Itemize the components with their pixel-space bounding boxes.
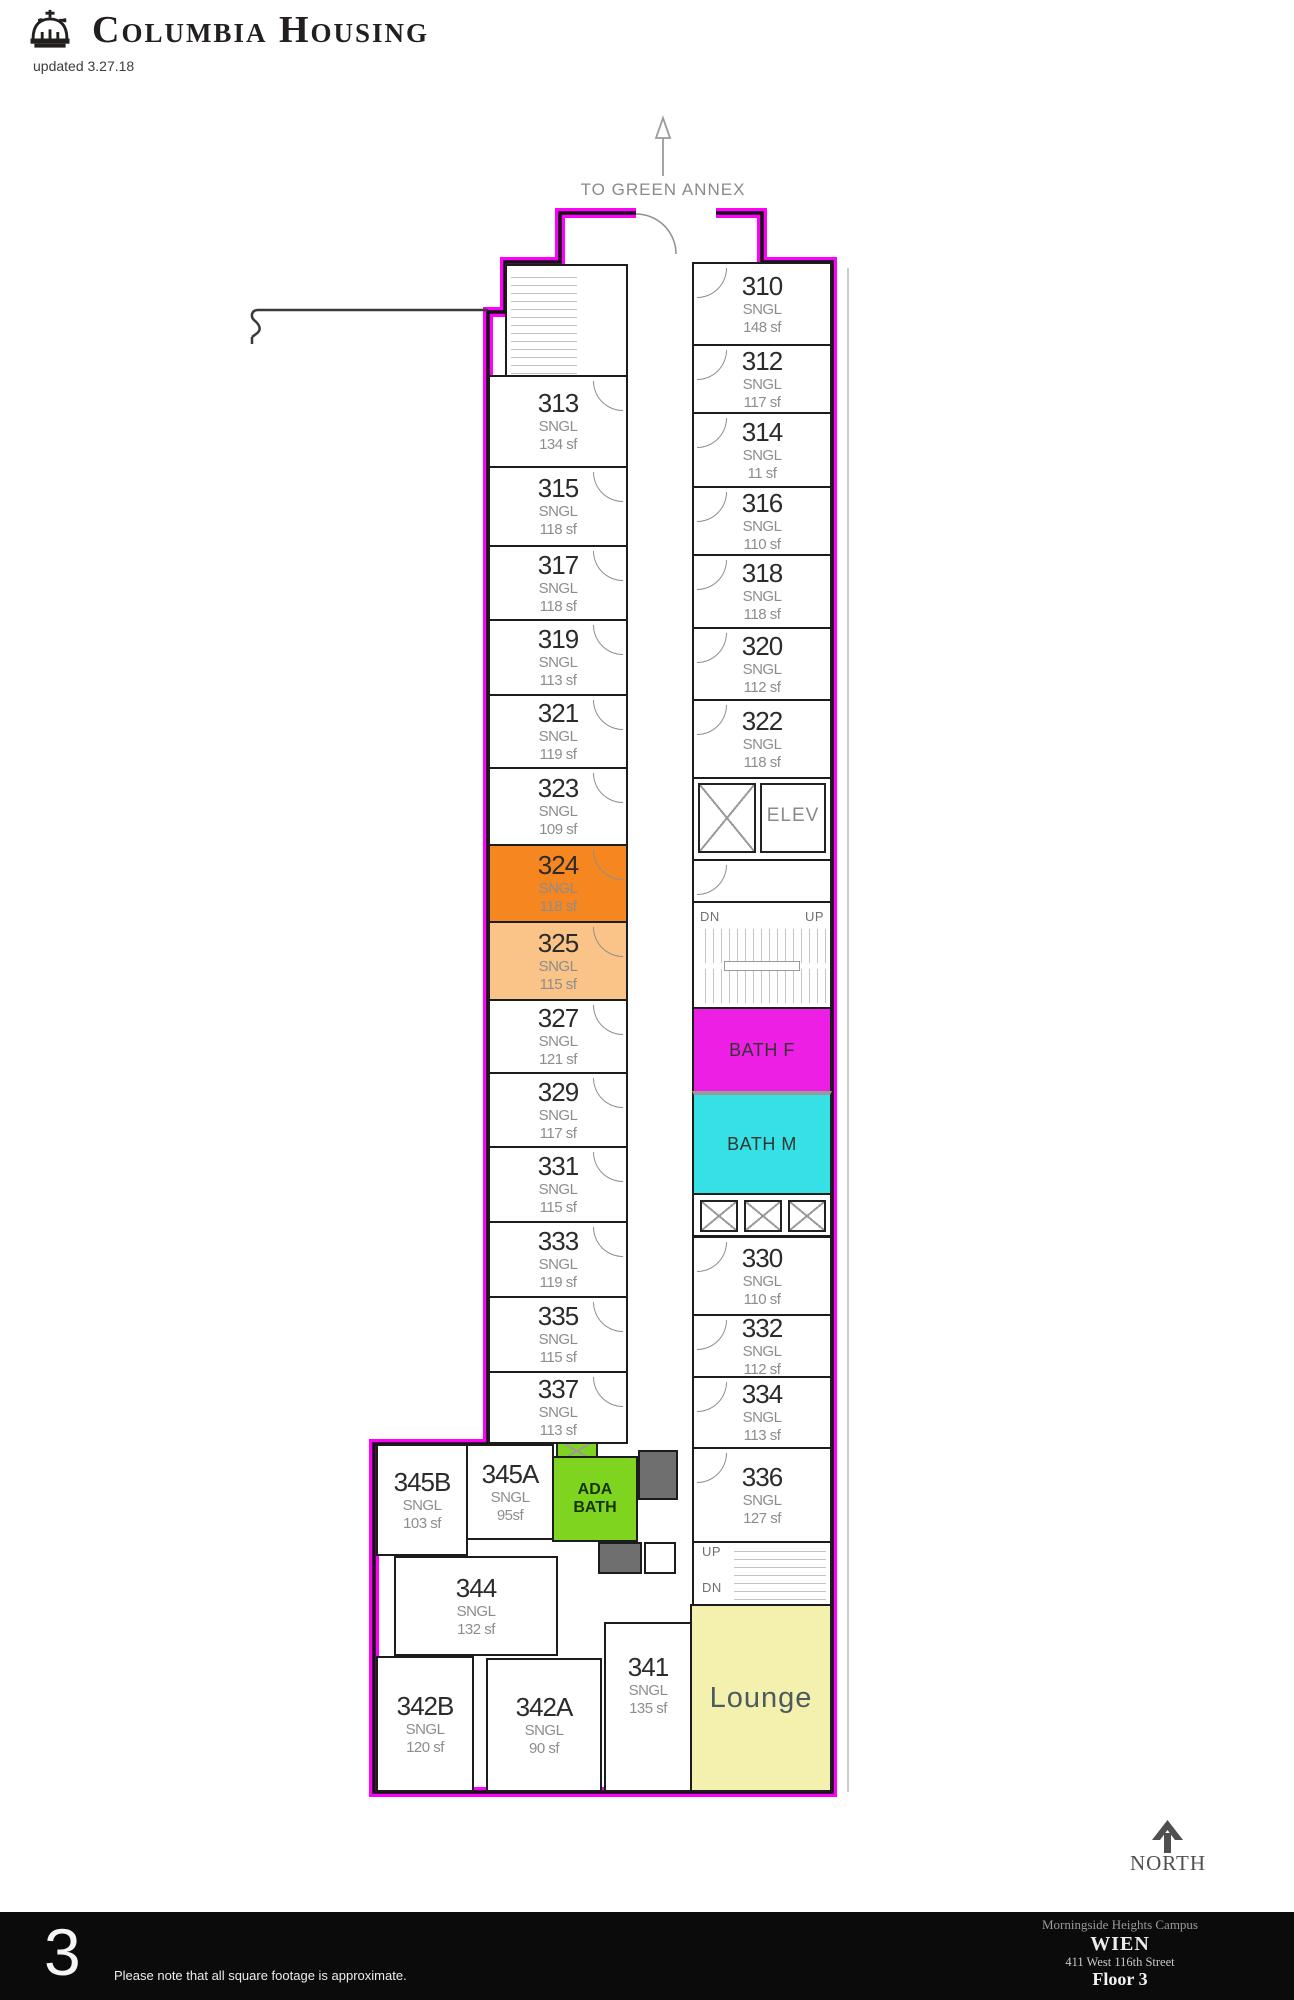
room-number: 323 [538, 775, 578, 802]
door-swing-icon [697, 633, 727, 663]
lounge: Lounge [690, 1604, 832, 1792]
room-314: 314SNGL11 sf [692, 412, 832, 488]
room-type: SNGL [491, 1490, 530, 1506]
room-337: 337SNGL113 sf [488, 1371, 628, 1444]
room-type: SNGL [743, 448, 782, 464]
room-type: SNGL [743, 1274, 782, 1290]
door-swing-icon [697, 705, 727, 735]
door-swing-icon [697, 350, 727, 380]
room-323: 323SNGL109 sf [488, 767, 628, 846]
room-type: SNGL [539, 729, 578, 745]
ada-bath-label: ADA [578, 1481, 613, 1499]
elevator-shaft-icon [698, 783, 756, 853]
utility-closet [638, 1450, 678, 1500]
room-number: 313 [538, 390, 578, 417]
room-number: 345B [394, 1469, 451, 1496]
door-swing-icon [593, 1152, 623, 1182]
stair-up-label: UP [805, 909, 824, 924]
room-size: 127 sf [743, 1511, 781, 1527]
room-type: SNGL [406, 1722, 445, 1738]
room-313: 313SNGL134 sf [488, 375, 628, 468]
door-swing-icon [593, 1302, 623, 1332]
room-size: 135 sf [629, 1701, 667, 1717]
stair-dn-label: DN [700, 909, 720, 924]
room-number: 345A [482, 1461, 539, 1488]
door-swing-icon [697, 560, 727, 590]
room-number: 332 [742, 1315, 782, 1342]
room-type: SNGL [539, 1257, 578, 1273]
room-size: 11 sf [748, 466, 777, 482]
room-type: SNGL [743, 377, 782, 393]
room-size: 103 sf [403, 1516, 441, 1532]
north-arrow-icon [1152, 1820, 1183, 1853]
room-size: 118 sf [540, 599, 577, 615]
ada-bath-label: BATH [573, 1499, 616, 1517]
door-swing-icon [593, 850, 623, 880]
room-type: SNGL [539, 1332, 578, 1348]
room-329: 329SNGL117 sf [488, 1072, 628, 1148]
door-swing-icon [593, 1005, 623, 1035]
stair-up-label: UP [702, 1544, 721, 1559]
bath-f: BATH F [692, 1007, 832, 1093]
room-size: 117 sf [540, 1126, 577, 1142]
room-type: SNGL [539, 419, 578, 435]
door-swing-icon [593, 381, 623, 411]
room-size: 148 sf [743, 320, 781, 336]
room-number: 310 [742, 273, 782, 300]
room-number: 344 [456, 1575, 496, 1602]
room-334: 334SNGL113 sf [692, 1376, 832, 1449]
room-type: SNGL [743, 1344, 782, 1360]
room-type: SNGL [539, 1108, 578, 1124]
floor-label: Floor 3 [990, 1969, 1250, 1989]
room-number: 341 [628, 1654, 668, 1681]
room-number: 325 [538, 930, 578, 957]
door-swing-icon [697, 268, 727, 298]
room-size: 112 sf [744, 680, 781, 696]
room-size: 115 sf [540, 977, 577, 993]
room-number: 336 [742, 1464, 782, 1491]
door-swing-icon [593, 700, 623, 730]
closet-icon [744, 1200, 782, 1232]
room-333: 333SNGL119 sf [488, 1221, 628, 1298]
room-type: SNGL [743, 1493, 782, 1509]
room-size: 134 sf [539, 437, 577, 453]
stairwell-south: UP DN [692, 1538, 832, 1606]
room-number: 322 [742, 708, 782, 735]
room-number: 324 [538, 852, 578, 879]
stair-dn-label: DN [702, 1580, 722, 1595]
room-type: SNGL [539, 504, 578, 520]
room-size: 109 sf [539, 822, 577, 838]
room-type: SNGL [539, 1034, 578, 1050]
room-336: 336SNGL127 sf [692, 1447, 832, 1543]
room-324: 324SNGL118 sf [488, 844, 628, 923]
room-size: 115 sf [540, 1200, 577, 1216]
room-size: 113 sf [540, 1423, 577, 1439]
room-335: 335SNGL115 sf [488, 1296, 628, 1373]
door-swing-icon [593, 927, 623, 957]
room-331: 331SNGL115 sf [488, 1146, 628, 1223]
room-number: 316 [742, 490, 782, 517]
room-number: 312 [742, 348, 782, 375]
room-number: 321 [538, 700, 578, 727]
door-swing-icon [593, 472, 623, 502]
room-type: SNGL [539, 655, 578, 671]
room-size: 118 sf [744, 607, 781, 623]
door-swing-icon [697, 492, 727, 522]
room-316: 316SNGL110 sf [692, 486, 832, 556]
floor-plan-page: Columbia Housing updated 3.27.18 TO GREE… [0, 0, 1294, 2000]
footer-bar: 3 Please note that all square footage is… [0, 1912, 1294, 2000]
room-342B: 342BSNGL120 sf [376, 1656, 474, 1792]
room-size: 132 sf [457, 1622, 495, 1638]
door-swing-icon [593, 1078, 623, 1108]
room-size: 115 sf [540, 1350, 577, 1366]
room-size: 113 sf [744, 1428, 781, 1444]
room-type: SNGL [743, 662, 782, 678]
door-swing-icon [593, 1227, 623, 1257]
room-type: SNGL [539, 881, 578, 897]
bath-m: BATH M [692, 1091, 832, 1195]
room-number: 318 [742, 560, 782, 587]
room-325: 325SNGL115 sf [488, 921, 628, 1001]
room-number: 317 [538, 552, 578, 579]
room-size: 90 sf [529, 1741, 559, 1757]
room-size: 118 sf [540, 522, 577, 538]
room-size: 121 sf [539, 1052, 577, 1068]
elevator-block: ELEV [692, 777, 832, 861]
door-swing-icon [593, 625, 623, 655]
room-number: 331 [538, 1153, 578, 1180]
room-322: 322SNGL118 sf [692, 699, 832, 779]
room-type: SNGL [539, 959, 578, 975]
service-closets [692, 1193, 832, 1237]
room-327: 327SNGL121 sf [488, 999, 628, 1074]
room-type: SNGL [743, 302, 782, 318]
room-size: 110 sf [744, 1292, 781, 1308]
building-name: WIEN [990, 1933, 1250, 1955]
room-number: 329 [538, 1079, 578, 1106]
room-size: 118 sf [744, 755, 781, 771]
room-type: SNGL [743, 519, 782, 535]
room-size: 117 sf [744, 395, 781, 411]
room-number: 320 [742, 633, 782, 660]
room-341: 341SNGL135 sf [604, 1622, 692, 1792]
room-type: SNGL [743, 589, 782, 605]
door-swing-icon [593, 773, 623, 803]
room-number: 334 [742, 1381, 782, 1408]
room-type: SNGL [539, 804, 578, 820]
room-size: 118 sf [540, 899, 577, 915]
room-345A: 345ASNGL95sf [466, 1444, 554, 1540]
room-number: 319 [538, 626, 578, 653]
utility-closet [598, 1542, 642, 1574]
lounge-label: Lounge [710, 1682, 813, 1715]
door-swing-icon [697, 1453, 727, 1483]
room-310: 310SNGL148 sf [692, 262, 832, 346]
bath-f-label: BATH F [729, 1040, 795, 1061]
room-size: 120 sf [406, 1740, 444, 1756]
room-type: SNGL [539, 1182, 578, 1198]
room-number: 315 [538, 475, 578, 502]
room-type: SNGL [629, 1683, 668, 1699]
room-type: SNGL [539, 1405, 578, 1421]
room-317: 317SNGL118 sf [488, 545, 628, 621]
door-swing-icon [697, 418, 727, 448]
door-swing-icon [593, 1377, 623, 1407]
room-number: 337 [538, 1376, 578, 1403]
campus-name: Morningside Heights Campus [990, 1918, 1250, 1933]
room-type: SNGL [743, 1410, 782, 1426]
room-319: 319SNGL113 sf [488, 619, 628, 696]
room-345B: 345BSNGL103 sf [376, 1444, 468, 1556]
room-312: 312SNGL117 sf [692, 344, 832, 414]
room-type: SNGL [525, 1723, 564, 1739]
room-type: SNGL [403, 1498, 442, 1514]
stairwell-central: DN UP [692, 901, 832, 1009]
room-size: 119 sf [540, 747, 577, 763]
room-344: 344SNGL132 sf [394, 1556, 558, 1656]
room-number: 314 [742, 419, 782, 446]
door-swing-icon [697, 1320, 727, 1350]
closet-icon [700, 1200, 738, 1232]
room-size: 110 sf [744, 537, 781, 553]
annex-arrow-icon [656, 118, 670, 176]
page-number: 3 [44, 1914, 81, 1990]
door-swing-icon [593, 551, 623, 581]
room-number: 342A [516, 1694, 573, 1721]
room-number: 330 [742, 1245, 782, 1272]
door-swing-icon [697, 1382, 727, 1412]
room-size: 95sf [497, 1508, 523, 1524]
room-size: 113 sf [540, 673, 577, 689]
cornice-molding-line [252, 310, 488, 337]
room-number: 342B [397, 1693, 454, 1720]
room-318: 318SNGL118 sf [692, 554, 832, 629]
door-swing-icon [697, 1242, 727, 1272]
elevator-label: ELEV [758, 805, 828, 827]
room-type: SNGL [539, 581, 578, 597]
annex-label: TO GREEN ANNEX [553, 180, 773, 200]
ada-bath: ADA BATH [552, 1456, 638, 1542]
room-320: 320SNGL112 sf [692, 627, 832, 701]
room-321: 321SNGL119 sf [488, 694, 628, 769]
room-315: 315SNGL118 sf [488, 466, 628, 547]
room-type: SNGL [743, 737, 782, 753]
utility-closet [644, 1542, 676, 1574]
elevator-lobby [692, 859, 832, 903]
room-332: 332SNGL112 sf [692, 1314, 832, 1378]
room-number: 335 [538, 1303, 578, 1330]
room-size: 119 sf [540, 1275, 577, 1291]
closet-icon [788, 1200, 826, 1232]
north-label: NORTH [1108, 1851, 1228, 1876]
room-number: 333 [538, 1228, 578, 1255]
bath-m-label: BATH M [727, 1134, 797, 1155]
room-330: 330SNGL110 sf [692, 1236, 832, 1316]
room-342A: 342ASNGL90 sf [486, 1658, 602, 1792]
room-type: SNGL [457, 1604, 496, 1620]
building-address: 411 West 116th Street [990, 1955, 1250, 1969]
footnote: Please note that all square footage is a… [114, 1968, 407, 1983]
room-number: 327 [538, 1005, 578, 1032]
